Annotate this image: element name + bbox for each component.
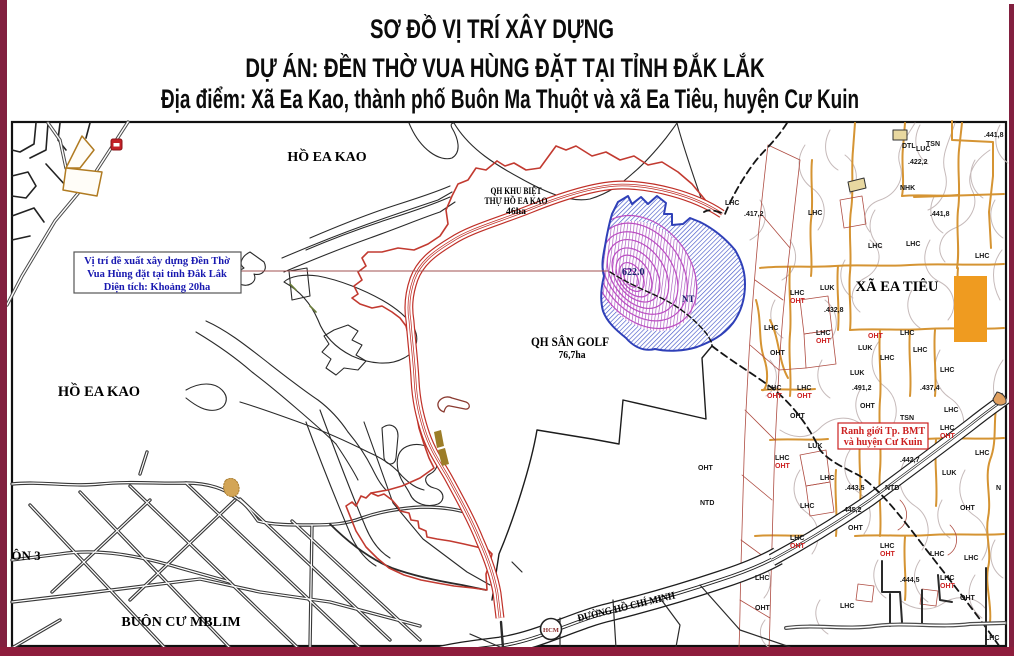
svg-text:OHT: OHT bbox=[767, 393, 783, 400]
svg-text:LHC: LHC bbox=[985, 635, 999, 642]
svg-text:.441,8: .441,8 bbox=[930, 211, 950, 218]
svg-text:LHC: LHC bbox=[940, 575, 954, 582]
svg-text:OHT: OHT bbox=[790, 543, 806, 550]
svg-text:OHT: OHT bbox=[816, 338, 832, 345]
svg-text:LHC: LHC bbox=[975, 450, 989, 457]
svg-text:.437,4: .437,4 bbox=[920, 385, 940, 392]
svg-text:LHC: LHC bbox=[880, 355, 894, 362]
svg-text:OHT: OHT bbox=[790, 413, 806, 420]
svg-text:LHC: LHC bbox=[790, 290, 804, 297]
svg-text:TSN: TSN bbox=[926, 141, 940, 148]
svg-text:Diện tích: Khoảng 20ha: Diện tích: Khoảng 20ha bbox=[104, 282, 211, 293]
svg-text:LHC: LHC bbox=[880, 543, 894, 550]
svg-text:OHT: OHT bbox=[960, 505, 976, 512]
svg-text:LUK: LUK bbox=[808, 443, 822, 450]
svg-text:QH SÂN GOLF: QH SÂN GOLF bbox=[531, 335, 609, 349]
svg-text:ÔN 3: ÔN 3 bbox=[11, 548, 41, 563]
svg-text:OHT: OHT bbox=[698, 465, 714, 472]
svg-text:OHT: OHT bbox=[860, 403, 876, 410]
svg-text:Vua Hùng đặt tại tỉnh Đắk Lắk: Vua Hùng đặt tại tỉnh Đắk Lắk bbox=[87, 269, 227, 280]
svg-text:OHT: OHT bbox=[775, 463, 791, 470]
svg-text:.417,2: .417,2 bbox=[744, 211, 764, 218]
svg-text:LHC: LHC bbox=[868, 243, 882, 250]
svg-text:.432,8: .432,8 bbox=[824, 307, 844, 314]
svg-text:NTD: NTD bbox=[700, 500, 714, 507]
svg-text:NT: NT bbox=[682, 294, 695, 304]
svg-text:NHK: NHK bbox=[900, 185, 915, 192]
svg-text:.442,7: .442,7 bbox=[900, 457, 920, 464]
svg-text:N: N bbox=[996, 485, 1001, 492]
svg-text:LHC: LHC bbox=[913, 347, 927, 354]
svg-text:LHC: LHC bbox=[930, 551, 944, 558]
svg-text:LHC: LHC bbox=[797, 385, 811, 392]
svg-text:LHC: LHC bbox=[900, 330, 914, 337]
svg-text:.443,5: .443,5 bbox=[845, 485, 865, 492]
svg-text:LHC: LHC bbox=[906, 241, 920, 248]
svg-text:Ranh giới Tp. BMT: Ranh giới Tp. BMT bbox=[841, 426, 926, 437]
svg-text:LHC: LHC bbox=[767, 385, 781, 392]
svg-text:BUÔN CƯ MBLIM: BUÔN CƯ MBLIM bbox=[121, 613, 240, 630]
svg-text:LHC: LHC bbox=[940, 367, 954, 374]
svg-text:.491,2: .491,2 bbox=[852, 385, 872, 392]
svg-text:LHC: LHC bbox=[964, 555, 978, 562]
svg-text:LHC: LHC bbox=[775, 455, 789, 462]
svg-text:OHT: OHT bbox=[880, 551, 896, 558]
svg-text:LHC: LHC bbox=[944, 407, 958, 414]
svg-text:76,7ha: 76,7ha bbox=[559, 350, 586, 361]
svg-text:LUK: LUK bbox=[942, 470, 956, 477]
svg-text:46ha: 46ha bbox=[506, 206, 527, 216]
svg-text:LHC: LHC bbox=[816, 330, 830, 337]
svg-text:LHC: LHC bbox=[790, 535, 804, 542]
svg-text:TSN: TSN bbox=[900, 415, 914, 422]
svg-text:OHT: OHT bbox=[848, 525, 864, 532]
svg-text:Vị trí đề xuất xây dựng Đền Th: Vị trí đề xuất xây dựng Đền Thờ bbox=[84, 256, 230, 267]
svg-text:.422,2: .422,2 bbox=[908, 159, 928, 166]
svg-text:LHC: LHC bbox=[764, 325, 778, 332]
svg-text:QH KHU BIỆT: QH KHU BIỆT bbox=[491, 186, 542, 196]
svg-text:.444,5: .444,5 bbox=[900, 577, 920, 584]
svg-text:OHT: OHT bbox=[790, 298, 806, 305]
svg-text:HỒ EA KAO: HỒ EA KAO bbox=[287, 147, 366, 165]
svg-text:OHT: OHT bbox=[797, 393, 813, 400]
svg-text:LHC: LHC bbox=[725, 200, 739, 207]
svg-text:LHC: LHC bbox=[940, 425, 954, 432]
svg-text:LUK: LUK bbox=[858, 345, 872, 352]
svg-text:LHC: LHC bbox=[755, 575, 769, 582]
svg-text:OHT: OHT bbox=[755, 605, 771, 612]
svg-text:DTL: DTL bbox=[902, 143, 916, 150]
svg-text:OHT: OHT bbox=[940, 583, 956, 590]
svg-text:.441,8: .441,8 bbox=[984, 132, 1004, 139]
svg-text:LUK: LUK bbox=[850, 370, 864, 377]
svg-text:LHC: LHC bbox=[800, 503, 814, 510]
svg-text:OHT: OHT bbox=[868, 333, 884, 340]
svg-text:622.0: 622.0 bbox=[622, 267, 645, 278]
svg-text:NTD: NTD bbox=[885, 485, 899, 492]
svg-text:LUK: LUK bbox=[820, 285, 834, 292]
svg-text:và huyện Cư Kuin: và huyện Cư Kuin bbox=[844, 437, 923, 448]
svg-text:LHC: LHC bbox=[820, 475, 834, 482]
svg-text:OHT: OHT bbox=[770, 350, 786, 357]
svg-text:THỰ HỒ EA KAO: THỰ HỒ EA KAO bbox=[485, 196, 548, 206]
svg-text:OHT: OHT bbox=[940, 433, 956, 440]
svg-text:OHT: OHT bbox=[960, 595, 976, 602]
svg-text:HỒ EA KAO: HỒ EA KAO bbox=[58, 382, 140, 400]
svg-text:.445,2: .445,2 bbox=[842, 507, 862, 514]
svg-text:LHC: LHC bbox=[840, 603, 854, 610]
svg-text:HCM: HCM bbox=[543, 627, 559, 634]
svg-text:LHC: LHC bbox=[975, 253, 989, 260]
svg-text:LHC: LHC bbox=[808, 210, 822, 217]
svg-text:XÃ EA TIÊU: XÃ EA TIÊU bbox=[856, 277, 939, 295]
